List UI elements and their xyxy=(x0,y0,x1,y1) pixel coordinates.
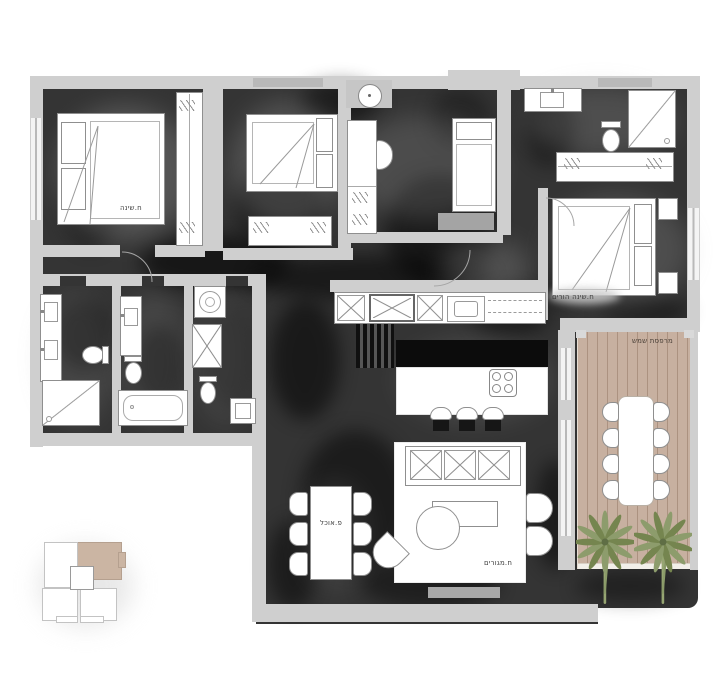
room-label-terrace: מרפסת שמש xyxy=(632,338,673,345)
floor-plan-canvas: ח.שינה ח.שינה הורים פ.אוכל ח.מגורים מרפס… xyxy=(0,0,726,700)
room-label-bedroom: ח.שינה xyxy=(120,205,142,212)
collage-block-white-center xyxy=(70,566,94,590)
room-label-dining: פ.אוכל xyxy=(310,520,352,527)
room-label-living: ח.מגורים xyxy=(484,560,512,567)
room-label-master-bedroom: ח.שינה הורים xyxy=(552,294,594,301)
collage-strip xyxy=(80,616,104,623)
collage-block-tan-small xyxy=(118,552,126,568)
collage-strip xyxy=(56,616,78,623)
